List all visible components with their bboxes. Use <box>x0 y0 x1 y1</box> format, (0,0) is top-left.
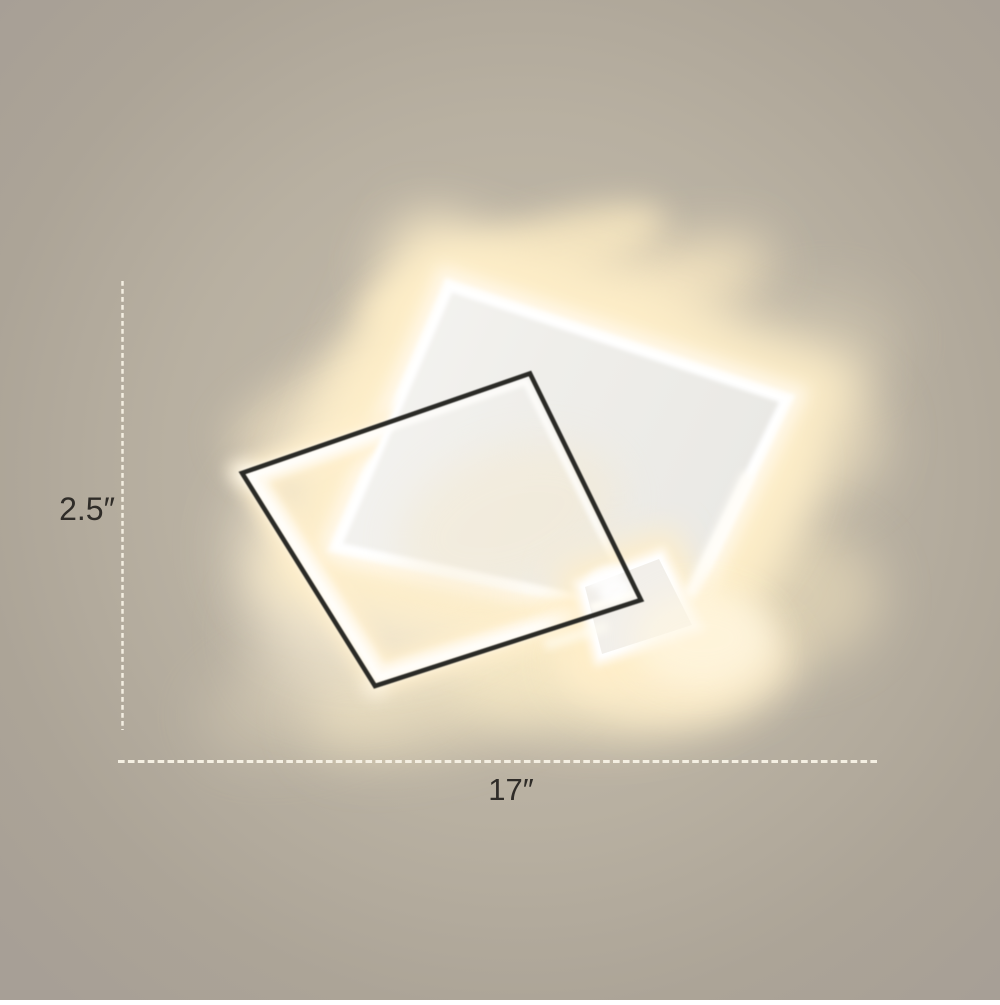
svg-text:2.5″: 2.5″ <box>59 491 115 527</box>
svg-text:17″: 17″ <box>488 772 533 807</box>
